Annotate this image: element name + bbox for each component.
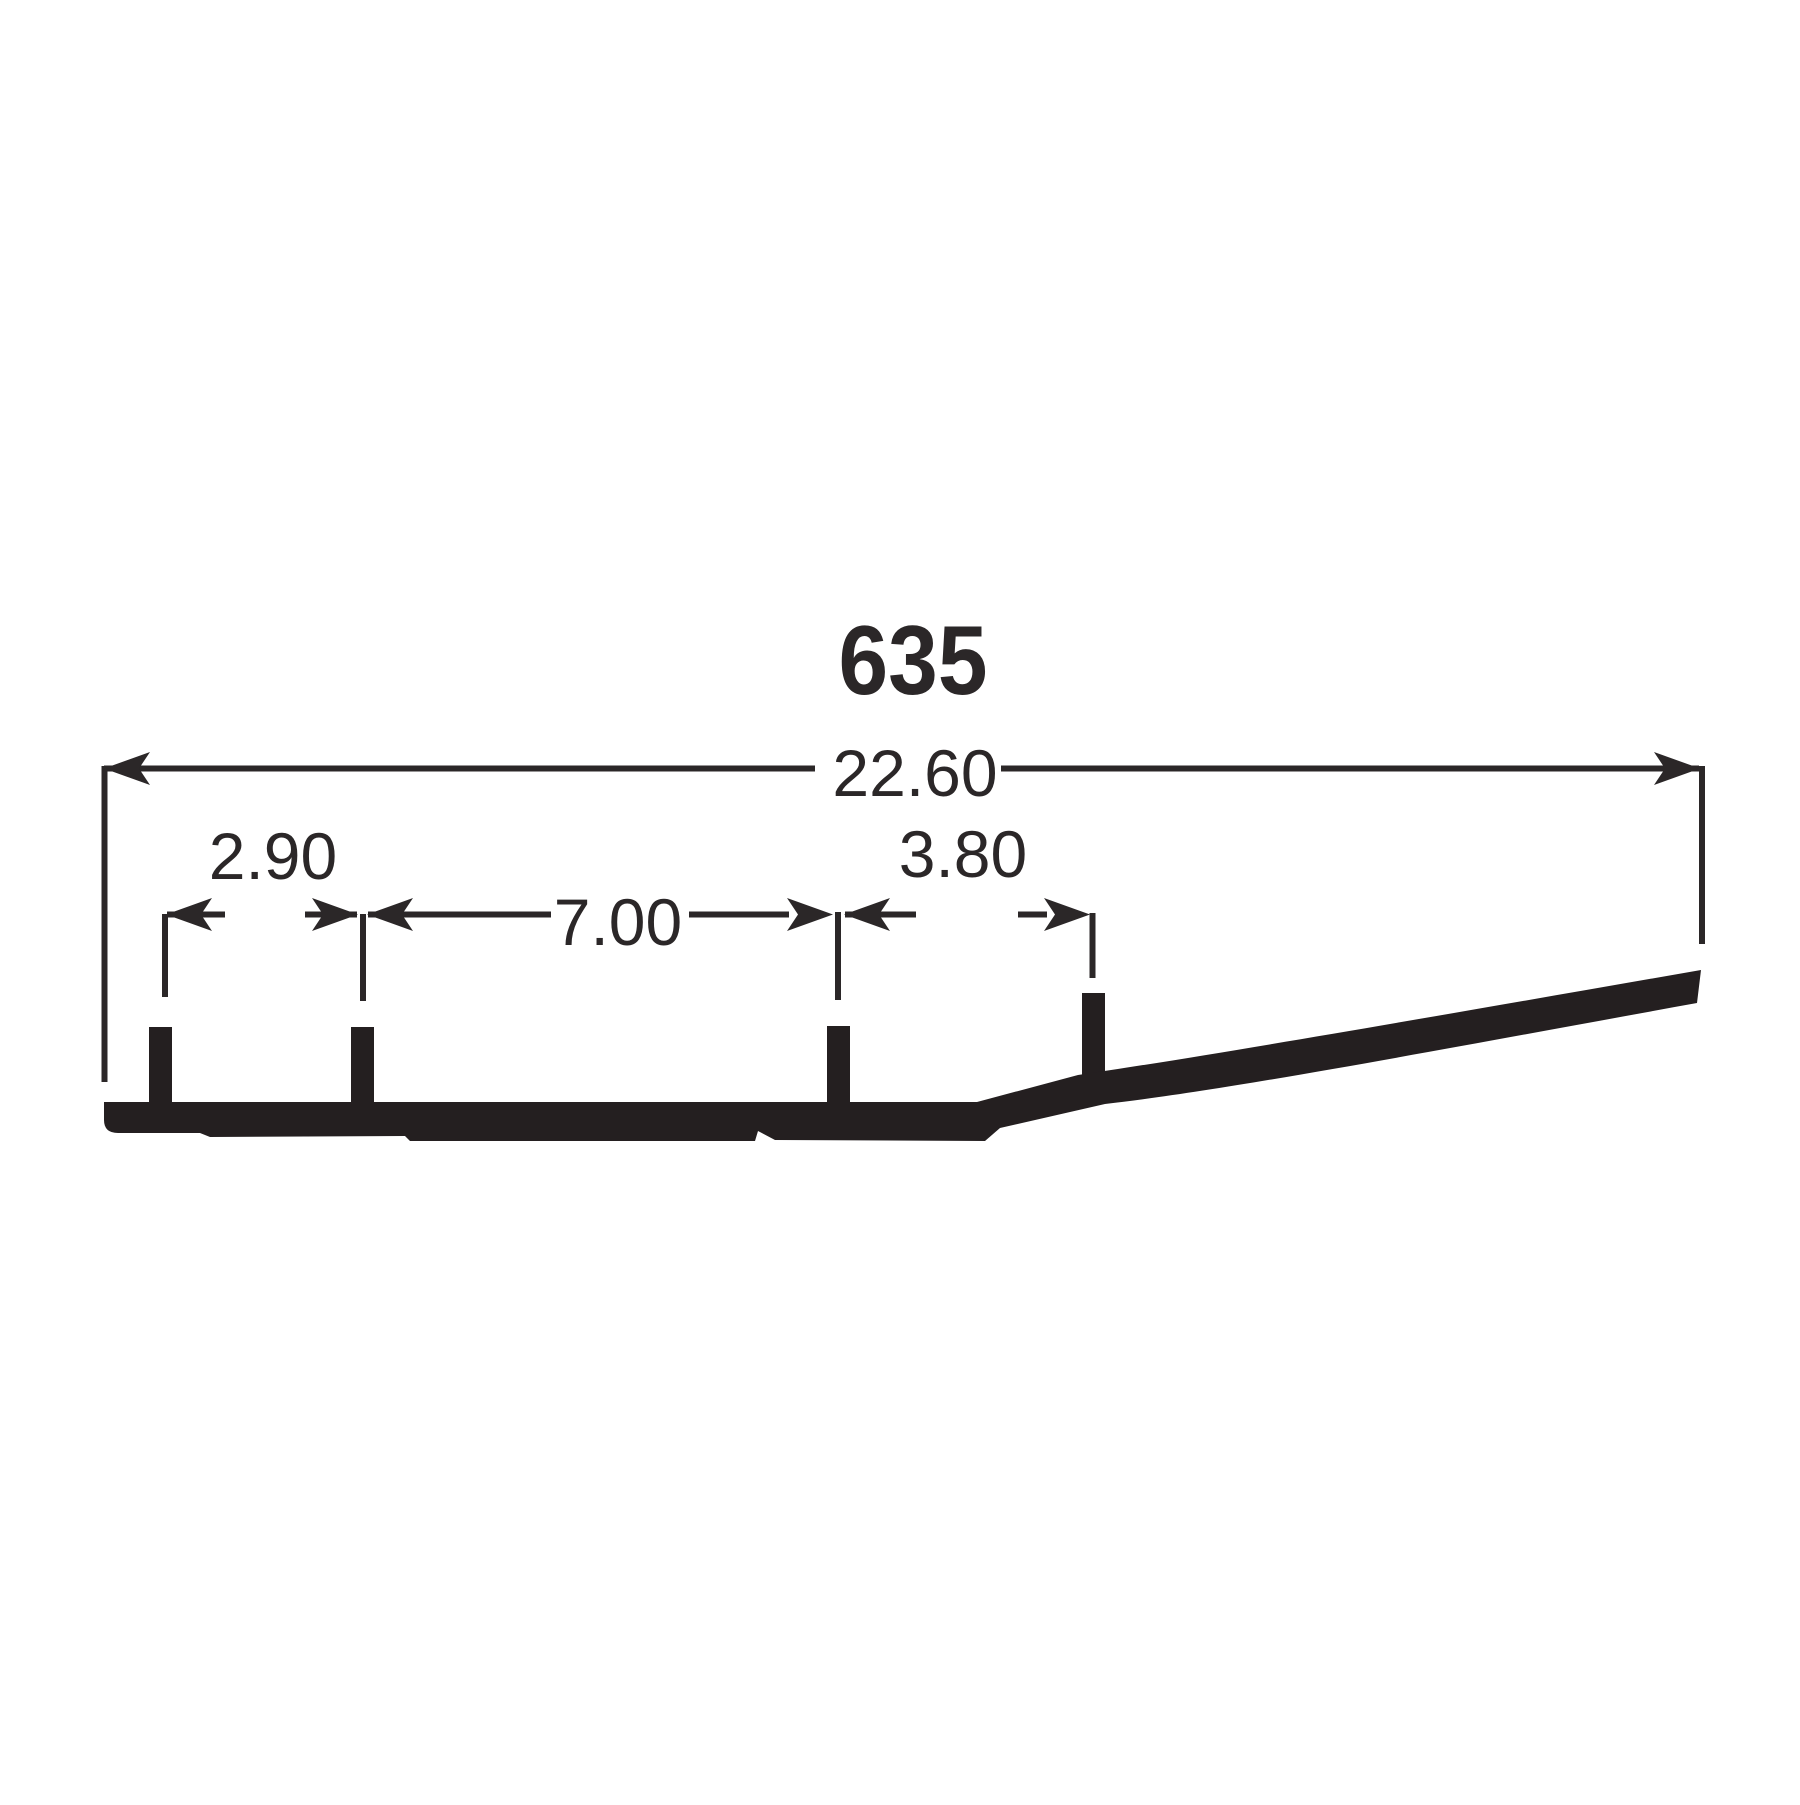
svg-text:7.00: 7.00	[554, 885, 682, 959]
svg-text:3.80: 3.80	[899, 817, 1027, 891]
svg-text:635: 635	[839, 605, 988, 715]
svg-text:2.90: 2.90	[209, 819, 337, 893]
svg-text:22.60: 22.60	[832, 736, 997, 810]
